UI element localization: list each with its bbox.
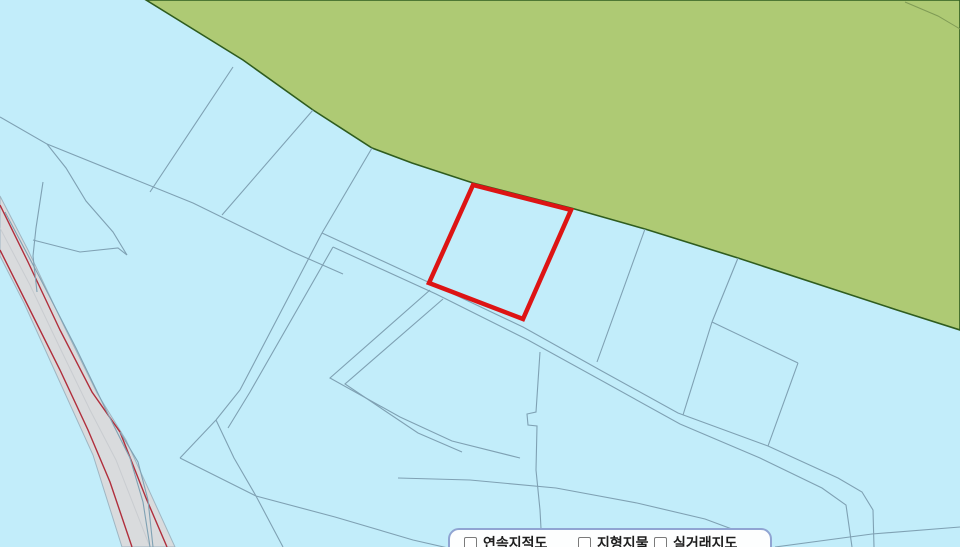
transaction-layer-label[interactable]: 실거래지도: [673, 536, 737, 547]
cadastral-layer-checkbox[interactable]: [464, 537, 477, 547]
terrain-layer-checkbox[interactable]: [578, 537, 591, 547]
layer-item-terrain: 지형지물: [578, 536, 649, 547]
transaction-layer-checkbox[interactable]: [654, 537, 667, 547]
map-viewport[interactable]: 연속지적도 지형지물 실거래지도: [0, 0, 960, 547]
terrain-layer-label[interactable]: 지형지물: [597, 536, 649, 547]
layer-item-transaction: 실거래지도: [654, 536, 737, 547]
cadastral-map-svg[interactable]: [0, 0, 960, 547]
cadastral-layer-label[interactable]: 연속지적도: [483, 536, 547, 547]
layer-item-cadastral: 연속지적도: [464, 536, 547, 547]
layer-control-panel: 연속지적도 지형지물 실거래지도: [448, 528, 772, 547]
